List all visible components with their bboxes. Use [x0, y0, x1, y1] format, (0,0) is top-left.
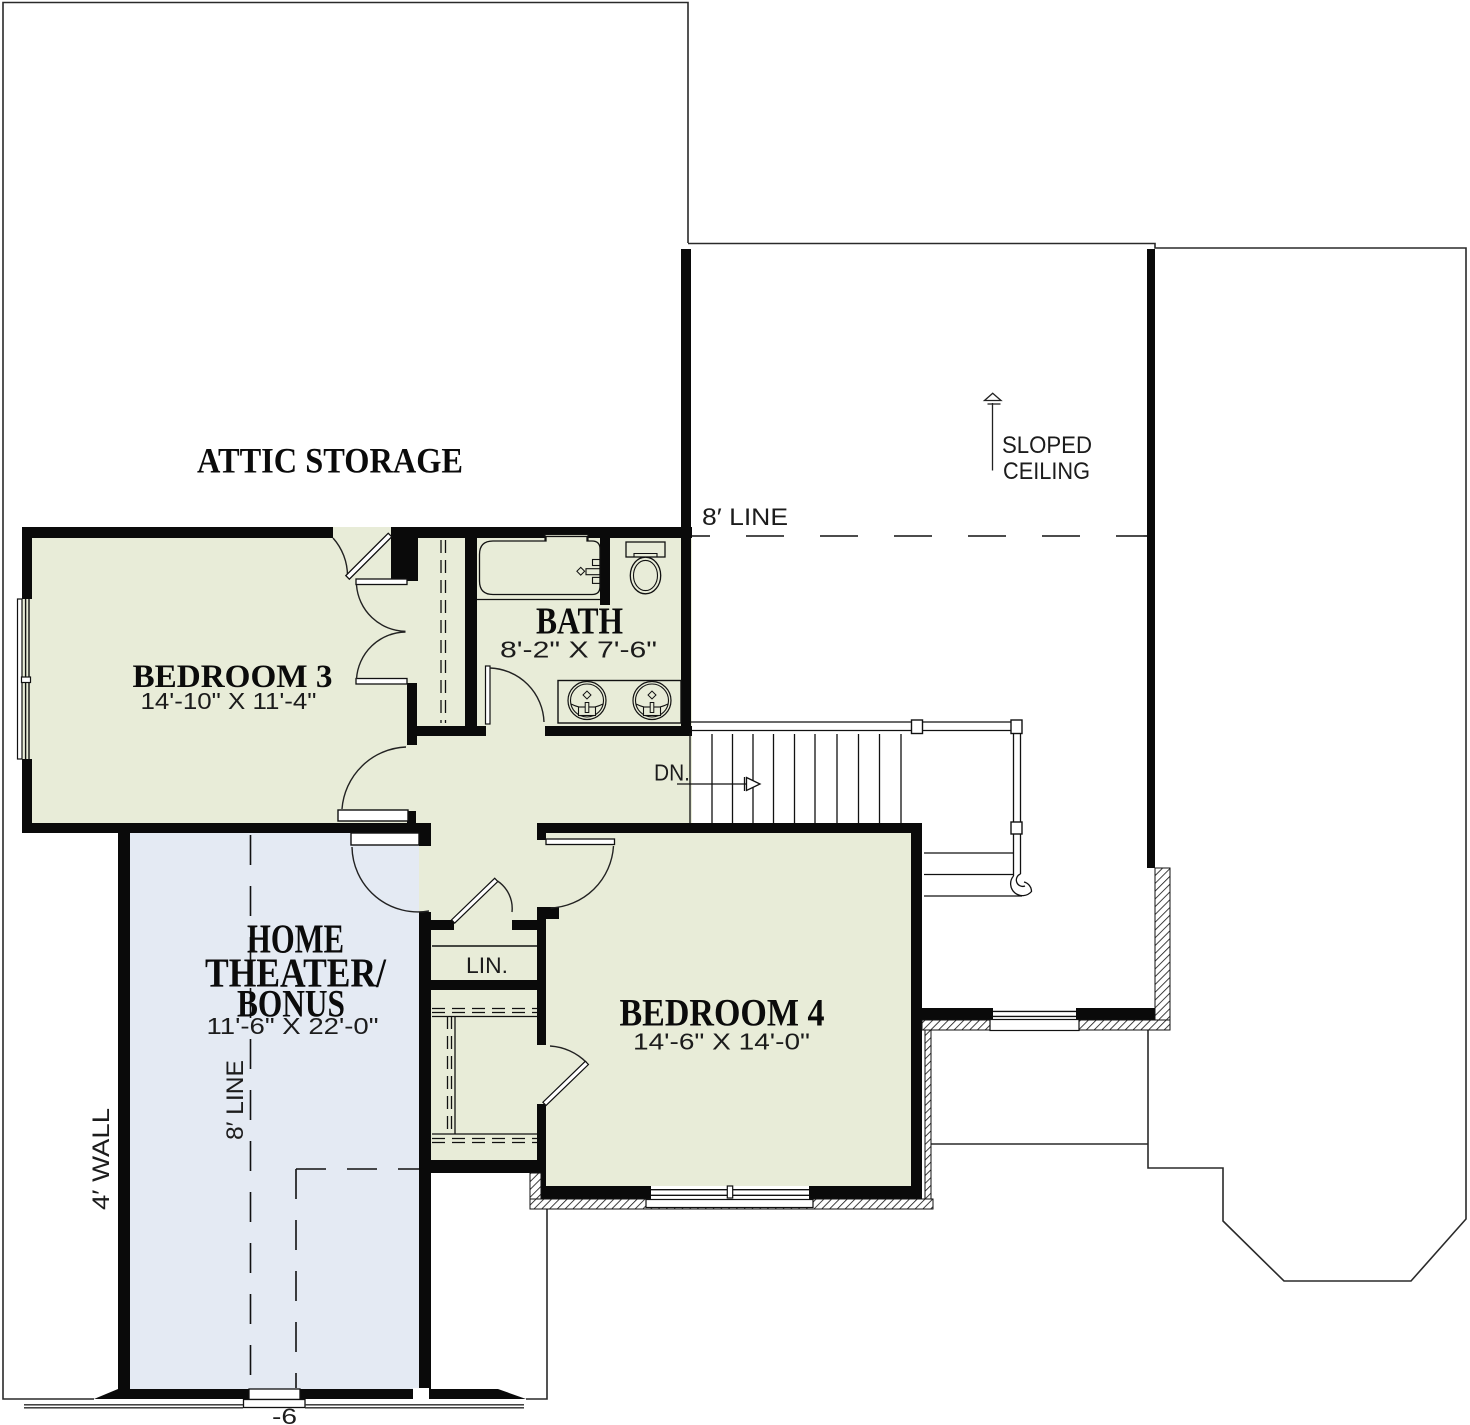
- svg-text:8′ LINE: 8′ LINE: [222, 1060, 249, 1140]
- svg-text:DN.: DN.: [654, 760, 690, 786]
- svg-text:14'-6" X 14'-0": 14'-6" X 14'-0": [633, 1029, 810, 1055]
- svg-text:ATTIC STORAGE: ATTIC STORAGE: [197, 441, 463, 481]
- svg-text:CEILING: CEILING: [1003, 458, 1090, 485]
- svg-text:8'-2" X 7'-6": 8'-2" X 7'-6": [500, 637, 657, 663]
- svg-text:14'-10" X 11'-4": 14'-10" X 11'-4": [141, 688, 317, 714]
- svg-text:SLOPED: SLOPED: [1002, 432, 1092, 459]
- svg-text:LIN.: LIN.: [466, 953, 508, 978]
- svg-text:4′ WALL: 4′ WALL: [88, 1108, 115, 1210]
- svg-text:-6: -6: [272, 1404, 297, 1425]
- svg-text:11'-6" X 22'-0": 11'-6" X 22'-0": [207, 1013, 379, 1039]
- svg-text:8′ LINE: 8′ LINE: [702, 504, 788, 531]
